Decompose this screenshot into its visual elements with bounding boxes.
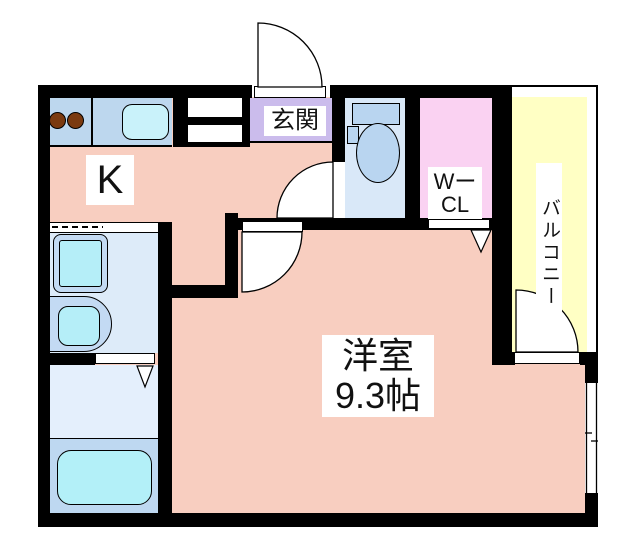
- entry-door-sill: [254, 86, 326, 98]
- entry-door-swing: [258, 23, 322, 87]
- bathroom-door-leaf: [95, 353, 155, 364]
- wash-basin: [58, 306, 100, 346]
- entrance-label: 玄関: [264, 106, 326, 136]
- wall-bottom: [38, 513, 598, 527]
- main-room-label: 洋室 9.3帖: [322, 335, 434, 417]
- shoe-cabinet-shelf: [188, 98, 242, 117]
- wall-left: [38, 85, 50, 527]
- balcony-door-sill: [514, 352, 580, 364]
- kitchen-sink: [122, 104, 169, 140]
- main-room-door-sill: [242, 221, 303, 232]
- floor-plan: K 玄関 Wー CL バルコニー 洋室 9.3帖: [0, 0, 636, 553]
- wall-top-right: [330, 85, 512, 98]
- wall-washroom-right: [158, 222, 172, 513]
- counter-divider-line: [91, 97, 93, 145]
- stove-burner-icon: [49, 112, 66, 129]
- balcony-label: バルコニー: [536, 163, 562, 343]
- washroom-sliding-door: [50, 222, 158, 233]
- walk-in-closet-label-line2: CL: [441, 193, 469, 216]
- wall-toilet-right: [405, 85, 420, 230]
- main-room-label-line2: 9.3帖: [335, 376, 421, 416]
- walk-in-closet-label-line1: Wー: [434, 170, 477, 193]
- wall-balcony-bottom-right: [580, 352, 598, 365]
- kitchen-label: K: [86, 155, 134, 205]
- window: [585, 383, 598, 493]
- stove-burner-icon: [67, 112, 84, 129]
- main-room-label-line1: 洋室: [342, 336, 414, 376]
- toilet-door-opening: [332, 162, 345, 218]
- wall-balcony-bottom-left: [493, 352, 515, 365]
- wall-closet-right: [492, 85, 512, 365]
- washing-machine: [59, 240, 102, 287]
- wall-right-lower: [585, 493, 598, 527]
- bathtub: [57, 450, 152, 505]
- closet-door-opening: [428, 219, 490, 229]
- walk-in-closet-label: Wー CL: [428, 167, 482, 219]
- wall-bath-divider: [48, 353, 95, 365]
- toilet-tank: [352, 103, 400, 125]
- shoe-cabinet-shelf: [188, 125, 242, 142]
- toilet-bowl: [356, 123, 400, 183]
